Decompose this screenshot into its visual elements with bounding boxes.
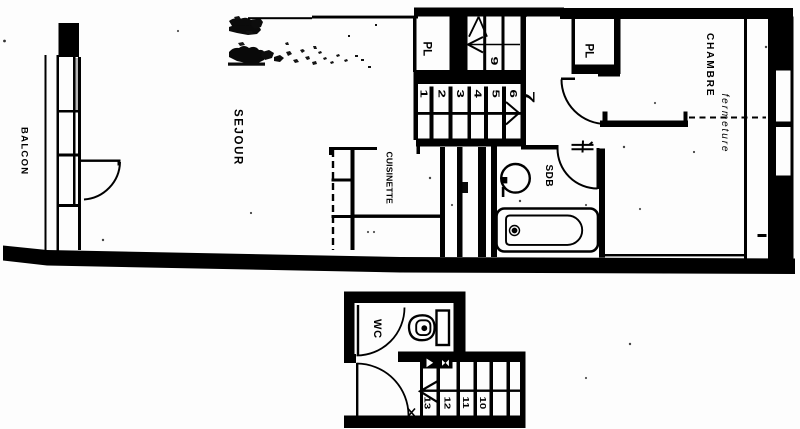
svg-text:6: 6 bbox=[508, 90, 520, 98]
svg-text:fermeture: fermeture bbox=[719, 94, 730, 154]
svg-text:12: 12 bbox=[442, 397, 451, 410]
svg-text:SEJOUR: SEJOUR bbox=[232, 109, 244, 166]
svg-text:SDB: SDB bbox=[543, 165, 554, 188]
svg-text:4: 4 bbox=[472, 90, 484, 99]
svg-text:13: 13 bbox=[422, 397, 431, 410]
svg-text:5: 5 bbox=[490, 90, 502, 98]
svg-text:11: 11 bbox=[460, 397, 469, 410]
svg-text:1: 1 bbox=[418, 90, 430, 98]
svg-text:WC: WC bbox=[371, 319, 383, 339]
svg-text:CHAMBRE: CHAMBRE bbox=[704, 33, 715, 97]
svg-text:BALCON: BALCON bbox=[19, 127, 30, 175]
svg-text:7: 7 bbox=[523, 91, 537, 103]
svg-text:2: 2 bbox=[436, 90, 448, 98]
svg-text:10: 10 bbox=[477, 397, 486, 410]
svg-text:9: 9 bbox=[489, 57, 500, 66]
svg-text:3: 3 bbox=[455, 90, 467, 98]
svg-text:PL: PL bbox=[583, 44, 595, 59]
svg-text:CUISINETTE: CUISINETTE bbox=[385, 152, 395, 205]
svg-text:PL: PL bbox=[421, 42, 433, 57]
